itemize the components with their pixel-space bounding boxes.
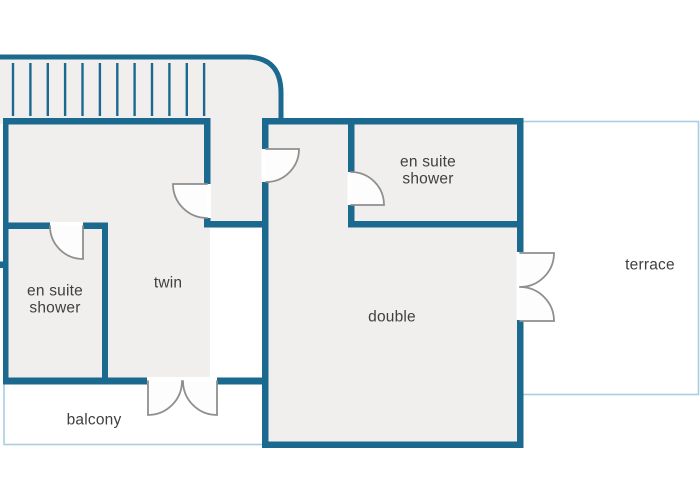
- wall-segment: [348, 118, 355, 172]
- wall-segment: [262, 182, 269, 448]
- wall-segment: [102, 223, 108, 385]
- room-label-terrace: terrace: [625, 256, 675, 273]
- balcony-outline: [4, 381, 263, 445]
- wall-segment: [3, 378, 147, 385]
- hallway-floor: [204, 118, 268, 228]
- wall-segment: [3, 223, 50, 230]
- room-label-twin: twin: [154, 274, 182, 291]
- wall-segment: [217, 378, 268, 385]
- floor-plan: en suite shower twin en suite shower dou…: [0, 0, 700, 500]
- room-label-line: en suite: [400, 154, 456, 171]
- room-label-line: shower: [400, 171, 456, 188]
- room-label-line: shower: [27, 300, 83, 317]
- wall-segment: [262, 442, 523, 449]
- double-room-floor: [262, 118, 523, 448]
- wall-segment: [204, 221, 268, 228]
- wall-segment: [204, 118, 211, 184]
- wall-segment: [0, 262, 3, 269]
- room-label-ensuite-left: en suite shower: [27, 283, 83, 318]
- room-label-ensuite-right: en suite shower: [400, 154, 456, 189]
- stairs-landing-floor: [0, 55, 283, 124]
- wall-segment: [3, 118, 210, 125]
- room-label-line: en suite: [27, 283, 83, 300]
- room-label-double: double: [368, 308, 416, 325]
- wall-segment: [3, 118, 9, 384]
- wall-segment: [262, 118, 523, 125]
- room-label-balcony: balcony: [67, 411, 122, 428]
- wall-segment: [348, 221, 523, 228]
- wall-segment: [517, 320, 524, 448]
- wall-segment: [517, 118, 524, 252]
